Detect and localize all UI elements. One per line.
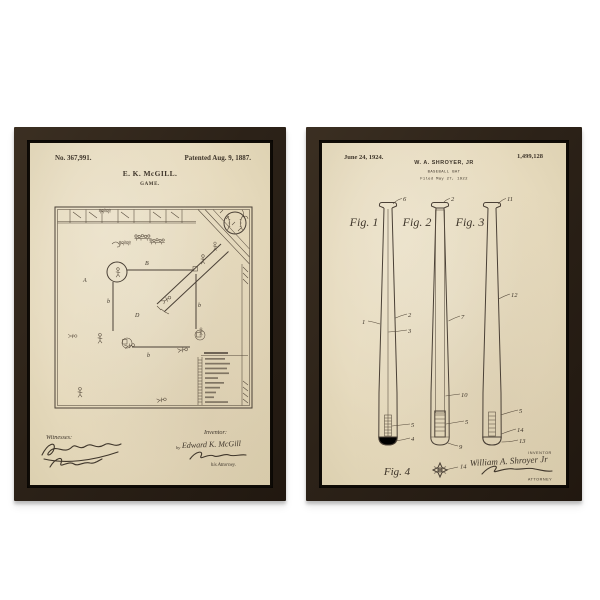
game-patent-drawing: No. 367,991. Patented Aug. 9, 1887. E. K…	[30, 143, 270, 485]
grandstand-band	[58, 210, 197, 224]
witnesses-label: Witnesses:	[46, 434, 72, 441]
callout-bat3-cap: 13	[519, 438, 526, 445]
callout-bat1-core: 3	[407, 328, 412, 335]
frame-inner-lip: June 24, 1924. 1,499,128 W. A. SHROYER, …	[319, 140, 569, 488]
bat3-callouts: 11 12 5 14 13	[498, 196, 526, 445]
label-b-right: b	[198, 303, 201, 309]
callout-bat1-left: 1	[362, 319, 365, 326]
patent-title: BASEBALL BAT	[428, 171, 461, 175]
attorney-note: his Attorney.	[211, 463, 236, 468]
patent-title: GAME.	[140, 182, 160, 187]
patent-number: No. 367,991.	[55, 154, 92, 162]
inventor-name: E. K. McGILL.	[123, 169, 178, 178]
bat1-callouts: 6 1 2 3 5 4	[362, 196, 415, 443]
inventor-label: Inventor:	[203, 429, 227, 436]
diagram-letter-labels: A B b D b b	[82, 261, 201, 359]
fig3-label: Fig. 3	[455, 215, 485, 229]
patent-number: 1,499,128	[517, 153, 544, 160]
callout-bat2-cap: 9	[459, 444, 463, 451]
callout-bat2-side: 7	[461, 314, 465, 321]
callout-bat3-insert: 5	[519, 408, 523, 415]
callout-fig4-section: 14	[460, 464, 467, 471]
by-label: by	[176, 445, 181, 450]
callout-bat1-right: 2	[408, 312, 412, 319]
player-figures	[68, 242, 217, 403]
product-photo: No. 367,991. Patented Aug. 9, 1887. E. K…	[0, 0, 600, 600]
label-D: D	[134, 313, 140, 319]
framed-print-bat-patent: June 24, 1924. 1,499,128 W. A. SHROYER, …	[306, 127, 582, 501]
bat-patent-paper: June 24, 1924. 1,499,128 W. A. SHROYER, …	[322, 143, 566, 485]
callout-bat1-knob: 6	[403, 196, 407, 203]
bat-fig2	[431, 203, 449, 446]
attorney-signature	[482, 466, 552, 474]
filed-line: Filed May 27, 1922	[420, 177, 468, 182]
label-A: A	[82, 278, 87, 284]
callout-bat2-plug: 5	[465, 419, 469, 426]
bat-fig1	[379, 203, 397, 446]
attorney-signature	[190, 452, 246, 459]
legend-table	[198, 353, 248, 405]
callout-bat2-knob: 2	[451, 196, 455, 203]
frame-inner-lip: No. 367,991. Patented Aug. 9, 1887. E. K…	[27, 140, 273, 488]
witness-signature-1	[42, 444, 121, 462]
callout-bat3-knob: 11	[507, 196, 513, 203]
inventor-name: W. A. SHROYER, JR	[414, 160, 474, 166]
base-path	[107, 262, 205, 348]
bat-patent-drawing: June 24, 1924. 1,499,128 W. A. SHROYER, …	[322, 143, 566, 485]
callout-bat3-mid: 14	[517, 427, 524, 434]
issue-date: June 24, 1924.	[344, 154, 384, 161]
figure-border	[55, 207, 252, 408]
witness-signature-2	[50, 458, 102, 467]
callout-bat3-side: 12	[511, 292, 518, 299]
star-section-icon	[433, 463, 447, 477]
inventor-signature: Edward K. McGill	[181, 439, 242, 450]
slide-chute	[157, 244, 229, 314]
fig1-label: Fig. 1	[349, 215, 379, 229]
fig2-label: Fig. 2	[402, 215, 432, 229]
fig4-label: Fig. 4	[383, 466, 411, 478]
callout-bat1-insert: 5	[411, 422, 415, 429]
label-B-top: B	[145, 261, 149, 267]
right-margin-lane	[242, 264, 248, 406]
patent-date: Patented Aug. 9, 1887.	[185, 154, 252, 162]
callout-bat1-cap: 4	[411, 436, 415, 443]
bat-fig3	[483, 203, 501, 446]
framed-print-game-patent: No. 367,991. Patented Aug. 9, 1887. E. K…	[14, 127, 286, 501]
baseball-icon	[224, 212, 246, 234]
inventor-signature: William A. Shroyer Jr	[470, 454, 549, 468]
callout-bat2-channel: 10	[461, 392, 468, 399]
label-b-left: b	[107, 299, 110, 305]
attorney-caption: ATTORNEY	[528, 478, 552, 482]
spectator-crowd	[99, 209, 165, 247]
game-patent-paper: No. 367,991. Patented Aug. 9, 1887. E. K…	[30, 143, 270, 485]
label-b-bottom: b	[147, 353, 150, 359]
